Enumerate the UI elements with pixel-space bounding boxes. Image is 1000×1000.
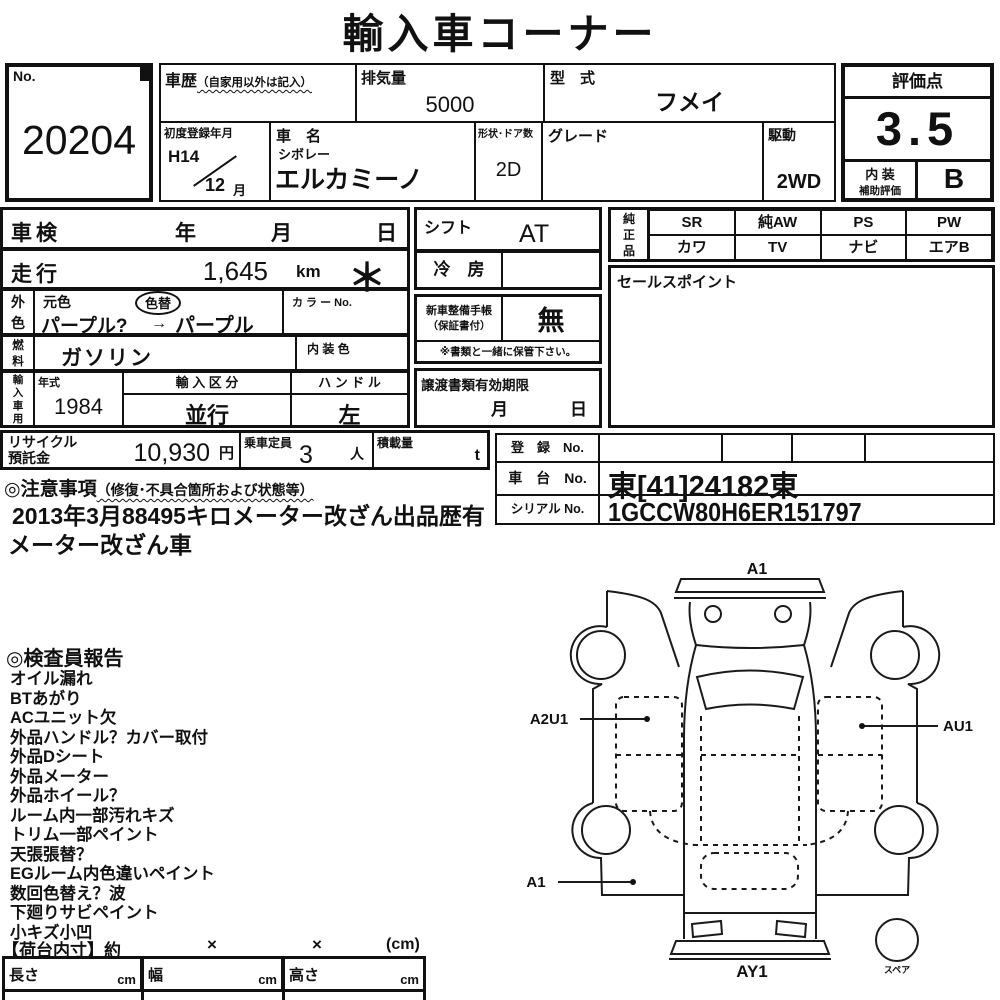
ac-label: 冷 房 [417,253,503,287]
import-class-cell: 輸 入 区 分 並行 [124,373,292,425]
diagram-label-a1-bottom: A1 [526,874,545,891]
history-cell: 車歴（自家用以外は記入） [159,63,357,123]
windshield [697,671,803,710]
service-book-box: 新車整備手帳 （保証書付） 無 ※書類と一緒に保管下さい。 [414,294,602,364]
displacement-label: 排気量 [361,67,406,88]
displacement-cell: 排気量 5000 [355,63,545,123]
oem-item-aw: 純AW [735,210,821,235]
handle-label: ハ ン ド ル [292,373,407,395]
first-registration-label: 初度登録年月 [164,125,233,141]
transfer-label: 譲渡書類有効期限 [421,374,529,394]
front-light-left [705,606,721,622]
reg-no-label-cell: 登 録 No. [495,433,600,463]
front-bumper [676,579,824,592]
shift-box: シフト AT [414,207,602,252]
month-suffix: 月 [233,180,246,199]
rear-bumper [671,941,829,954]
corner-mark [140,67,149,81]
taillight-right [776,921,806,937]
rating-score: 3.5 [845,99,990,162]
notes-line2: メーター改ざん車 [8,526,192,560]
report-list: オイル漏れ BTあがり ACユニット欠 外品ハンドル？カバー取付 外品Dシート … [10,670,215,943]
month-label: 月 [271,217,292,247]
diagram-label-a1-top: A1 [747,561,768,578]
report-item: 数回色替え？波 [10,885,215,905]
report-item: 外品メーター [10,768,215,788]
color-no-cell: カ ラ ー No. [282,291,407,333]
import-use-label: 輸入車用 [3,373,35,425]
oem-item-airbag: エアB [906,235,992,260]
color-arrow: → [151,315,167,333]
transfer-month: 月 [491,395,508,420]
load-unit: t [475,447,480,465]
notes-heading-note: （修復･不具合箇所および状態等） [97,482,314,498]
year-label: 年 [175,217,196,247]
wheel-front-left [577,631,625,679]
oem-label: 純正品 [611,210,649,259]
car-name-value: エルカミーノ [275,160,423,196]
rating-box: 評価点 3.5 内 装 補助評価 B [841,63,994,202]
report-item: 下廻りサビペイント [10,904,215,924]
diagram-label-spare: スペア [884,965,910,975]
oem-item-tv: TV [735,235,821,260]
wheel-front-right [871,631,919,679]
diagram-label-ay1: AY1 [736,962,768,981]
reg-no-value-cell [598,433,995,463]
report-item: 外品Dシート [10,748,215,768]
report-item: ルーム内一部汚れキズ [10,807,215,827]
oem-table: 純正品 SR 純AW PS PW カワ TV ナビ エアB [608,207,995,262]
page-title: 輸入車コーナー [0,0,1000,60]
taillight-left [692,921,722,937]
year-model-value: 1984 [35,394,122,420]
oem-item-leather: カワ [649,235,735,260]
report-item: トリム一部ペイント [10,826,215,846]
handle-cell: ハ ン ド ル 左 [292,373,407,425]
lot-number-box: No. 20204 [5,63,153,202]
bed-x2: × [312,935,322,955]
ac-box: 冷 房 [414,250,602,290]
import-row: 輸入車用 年式 1984 輸 入 区 分 並行 ハ ン ド ル 左 [0,370,410,428]
report-heading: ◎検査員報告 [6,642,123,671]
mileage-unit: km [296,262,321,282]
bed-region [701,853,798,889]
load-label: 積載量 [377,434,413,451]
mileage-label: 走行 [11,258,61,288]
oem-item-ps: PS [821,210,907,235]
diagram-label-a2u1: A2U1 [530,711,568,728]
report-item: 外品ハンドル？カバー取付 [10,729,215,749]
report-item: オイル漏れ [10,670,215,690]
recycle-unit: 円 [219,442,234,463]
capacity-unit: 人 [350,444,364,464]
load-cell: 積載量 t [374,433,487,467]
serial-no-value: 1GCCW80H6ER151797 [608,497,862,528]
year-model-cell: 年式 1984 [35,373,124,425]
interior-rating-label: 内 装 補助評価 [845,162,918,198]
fuel-label: 燃料 [3,337,35,369]
report-item: 天張張替？ [10,846,215,866]
color-no-label: カ ラ ー No. [292,294,352,310]
capacity-value: 3 [299,441,313,470]
bed-length-cell: 長さ cm [2,956,143,992]
history-label: 車歴 [165,73,197,90]
shape-doors-value: 2D [476,159,541,182]
interior-color-cell: 内 装 色 [295,337,407,369]
handle-value: 左 [292,395,407,430]
grade-cell: グレード [541,121,764,202]
bed-x1: × [207,935,217,955]
base-color-label: 元色 [43,292,71,312]
serial-no-label-cell: シリアル No. [495,494,600,525]
front-light-right [775,606,791,622]
shaken-label: 車検 [11,217,61,247]
transfer-day: 日 [570,395,587,420]
keep-note: ※書類と一緒に保管下さい。 [417,340,599,361]
mileage-row: 走行 1,645 km ＊ [0,248,410,290]
grade-label: グレード [548,125,608,146]
exterior-color-label: 外色 [3,291,35,333]
oem-item-navi: ナビ [821,235,907,260]
report-item: 外品ホイール？ [10,787,215,807]
lot-number-value: 20204 [9,117,149,164]
displacement-value: 5000 [357,92,543,118]
import-class-value: 並行 [124,395,290,430]
year-model-label: 年式 [38,374,60,390]
diagram-label-au1: AU1 [943,718,973,735]
shaken-row: 車検 年 月 日 [0,207,410,250]
sales-point-box: セールスポイント [608,265,995,428]
car-name-label: 車 名 [276,125,321,146]
drive-value: 2WD [764,171,834,194]
report-item: ACユニット欠 [10,709,215,729]
shift-value: AT [519,220,549,249]
fuel-row: 燃料 ガソリン 内 装 色 [0,334,410,372]
first-registration-month: 12 [205,175,225,196]
shape-doors-cell: 形状･ドア数 2D [474,121,543,202]
damage-diagram: A1 A2U1 AU1 A1 AY1 スペア [500,553,998,1000]
shift-label: シフト [424,214,472,238]
wheel-rear-left [582,806,630,854]
wheel-rear-right [875,806,923,854]
shape-doors-label: 形状･ドア数 [478,125,533,140]
transfer-box: 譲渡書類有効期限 月 日 [414,368,602,428]
recycle-cell: リサイクル預託金 10,930 円 [3,433,241,467]
spare-tire [876,919,918,961]
service-book-label: 新車整備手帳 （保証書付） [417,297,503,340]
report-item: EGルーム内色違いペイント [10,865,215,885]
bed-unit: (cm) [386,936,420,954]
day-label: 日 [376,217,397,247]
car-name-cell: 車 名 シボレー エルカミーノ [269,121,476,202]
first-registration-year: H14 [168,147,199,167]
bed-height-cell: 高さ cm [282,956,426,992]
lot-number-label: No. [13,68,36,84]
service-book-value: 無 [503,299,599,338]
auction-sheet: 輸入車コーナー No. 20204 車歴（自家用以外は記入） 排気量 5000 … [0,0,1000,1000]
model-code-value: フメイ [545,83,834,117]
history-note: （自家用以外は記入） [197,77,312,89]
interior-rating-value: B [918,162,990,198]
drive-cell: 駆動 2WD [762,121,836,202]
fuel-value: ガソリン [61,342,153,372]
mileage-value: 1,645 [148,256,268,287]
drive-label: 駆動 [768,125,796,145]
interior-color-label: 内 装 色 [307,340,350,357]
bed-table: 長さ cm 幅 cm 高さ cm [2,956,426,992]
bed-width-cell: 幅 cm [141,956,284,992]
serial-no-value-cell: 1GCCW80H6ER151797 [598,494,995,525]
recycle-row: リサイクル預託金 10,930 円 乗車定員 3 人 積載量 t [0,430,490,470]
recycle-label: リサイクル預託金 [8,434,77,466]
rating-label: 評価点 [845,67,990,99]
recycle-value: 10,930 [95,439,210,468]
first-registration-cell: 初度登録年月 H14 12 月 [159,121,271,202]
exterior-color-row: 外色 元色 色替 パープル? → パープル カ ラ ー No. [0,288,410,336]
oem-item-sr: SR [649,210,735,235]
import-class-label: 輸 入 区 分 [124,373,290,395]
bed-table-next-row [2,992,426,1000]
model-code-cell: 型 式 フメイ [543,63,836,123]
capacity-cell: 乗車定員 3 人 [241,433,374,467]
chassis-no-label-cell: 車 台 No. [495,461,600,496]
report-item: BTあがり [10,690,215,710]
capacity-label: 乗車定員 [244,434,292,451]
oem-item-pw: PW [906,210,992,235]
chassis-no-value-cell: 東[41]24182東 [598,461,995,496]
sales-point-label: セールスポイント [617,271,737,292]
